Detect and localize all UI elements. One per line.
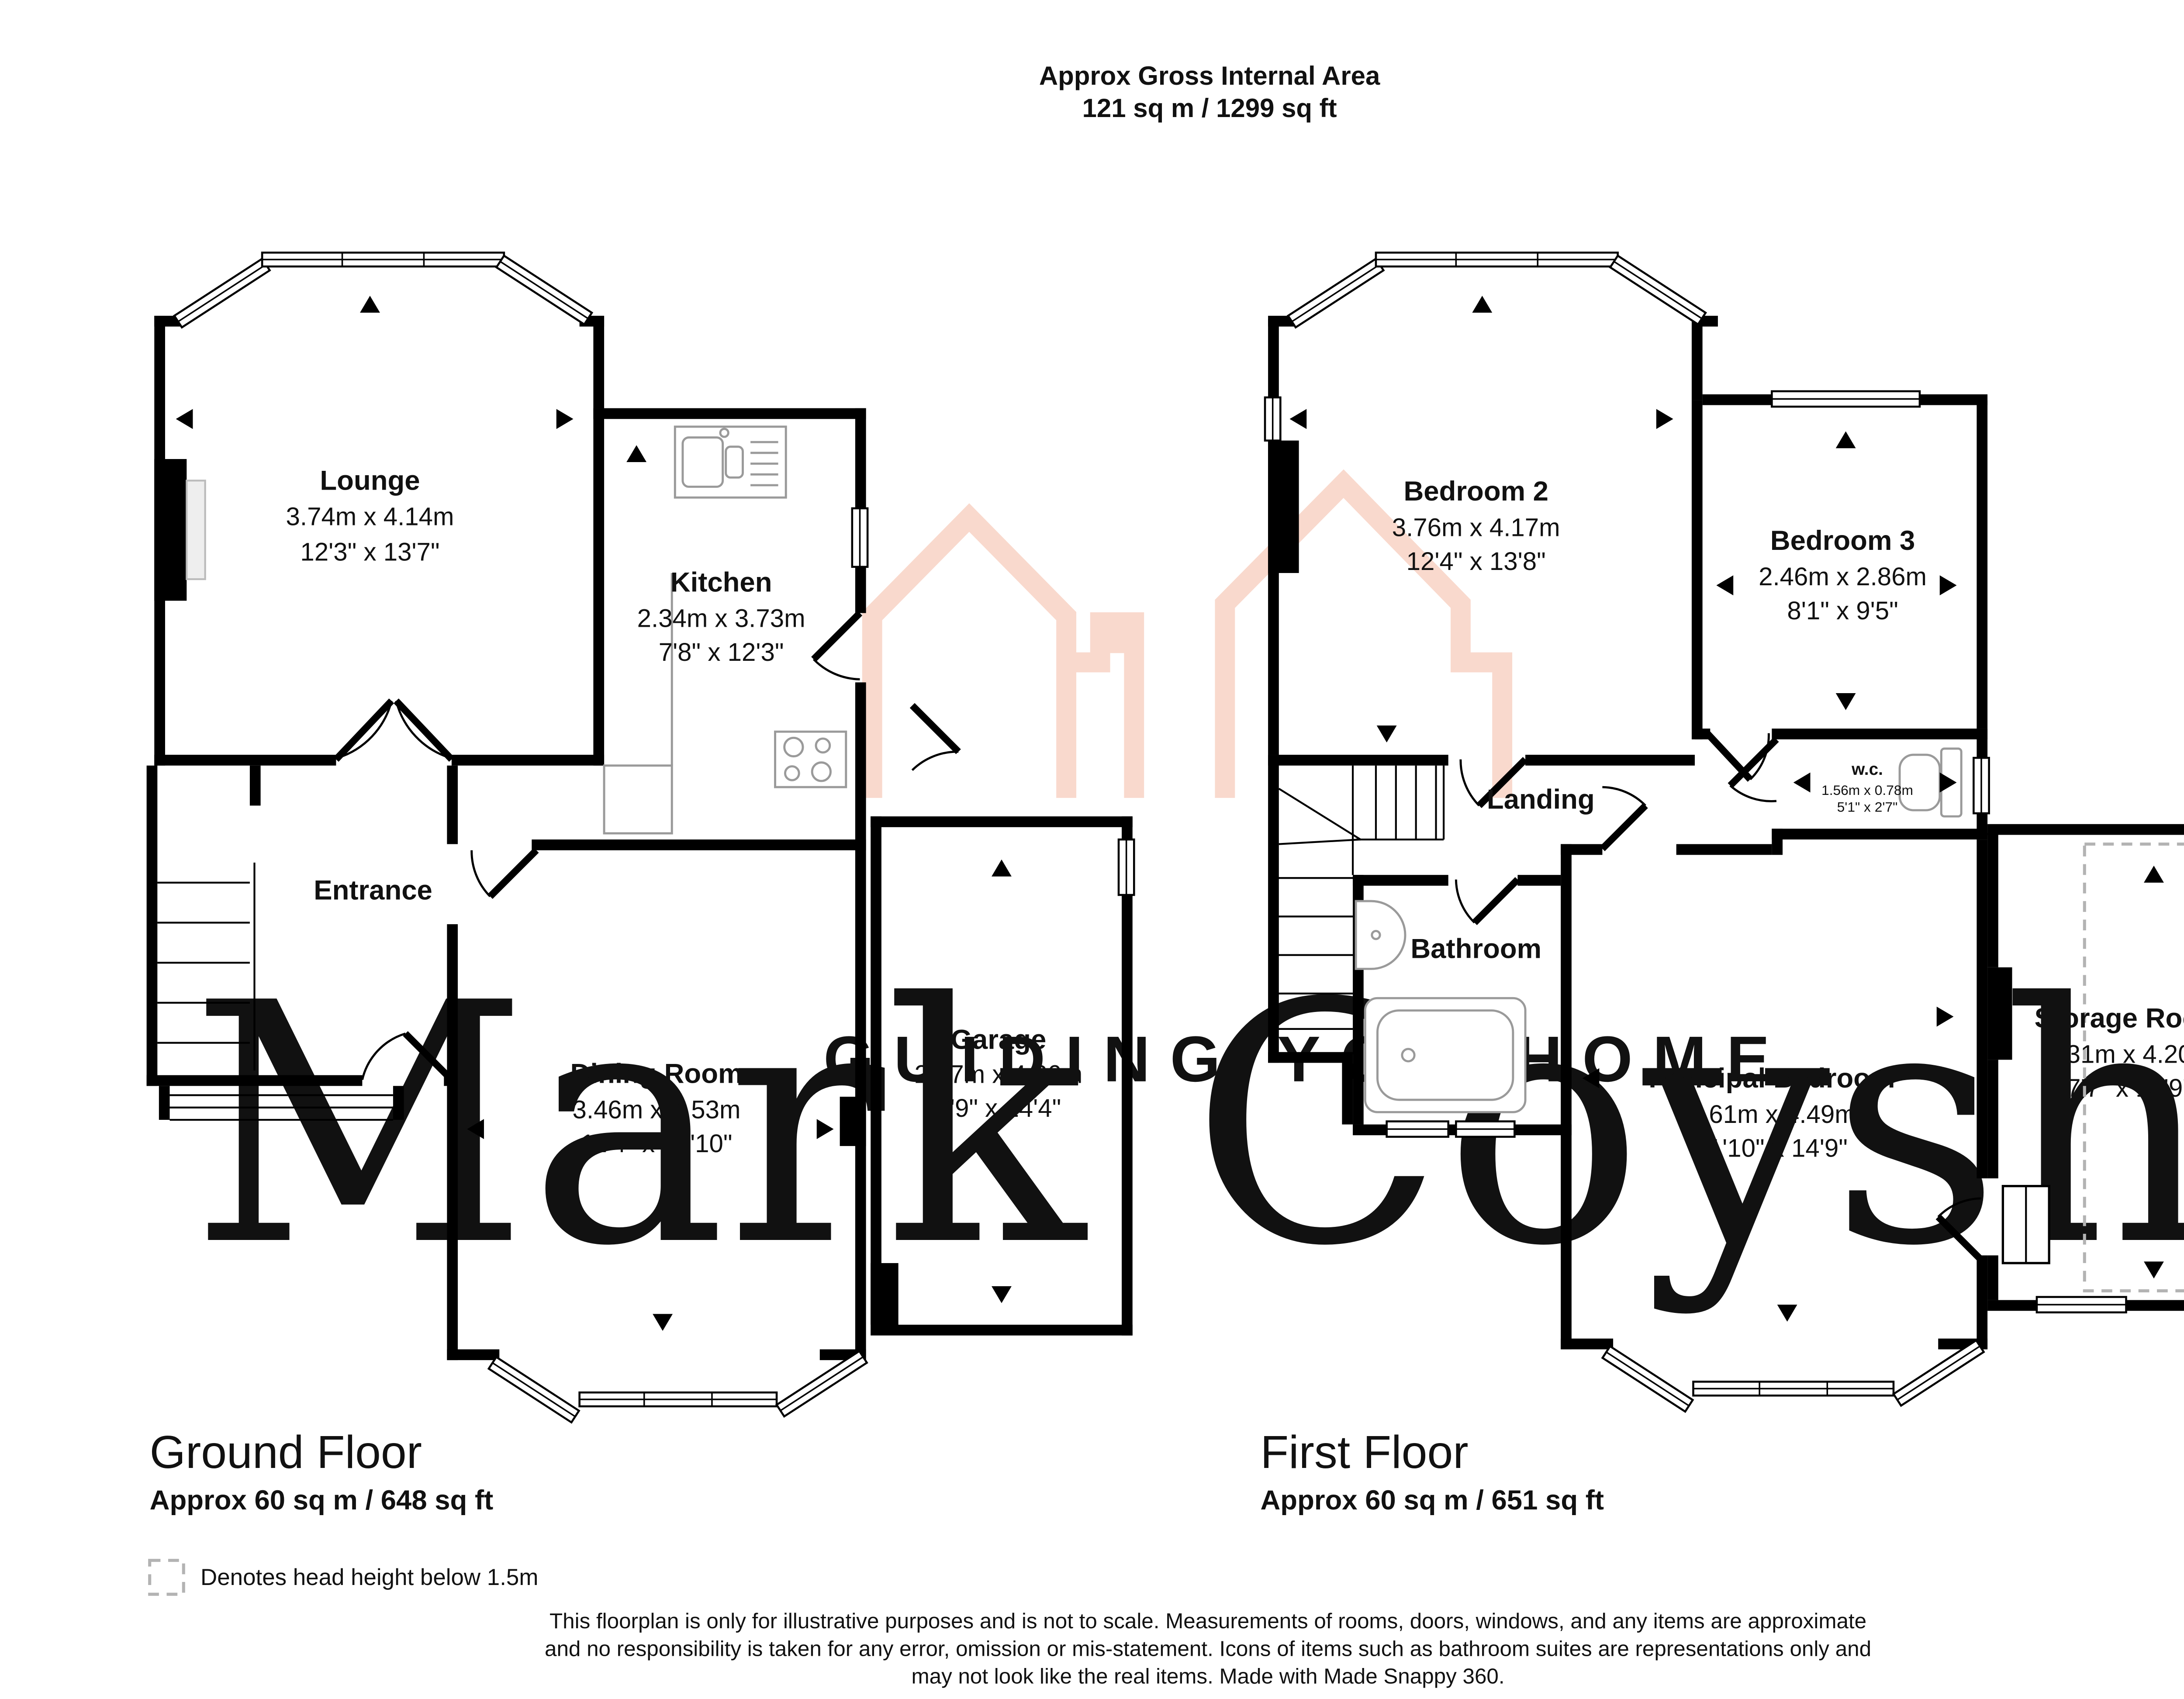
garage-metric: 2.37m x 4.36m (914, 1060, 1082, 1088)
head-height-legend-text: Denotes head height below 1.5m (200, 1564, 538, 1590)
ground-floor-area: Approx 60 sq m / 648 sq ft (150, 1485, 494, 1516)
wc-imperial: 5'1" x 2'7" (1837, 799, 1898, 815)
first-floor-area: Approx 60 sq m / 651 sq ft (1260, 1485, 1604, 1516)
brand-logo-dot-icon (1103, 622, 1131, 653)
bedroom2-metric: 3.76m x 4.17m (1392, 513, 1560, 542)
kitchen-unit-icon (604, 766, 672, 833)
bathtub-icon (1365, 998, 1525, 1112)
gross-area-title: Approx Gross Internal Area (1039, 61, 1380, 90)
dining-name: Dining Room (570, 1058, 743, 1089)
lounge-imperial: 12'3" x 13'7" (300, 538, 439, 566)
disclaimer: This floorplan is only for illustrative … (545, 1609, 1871, 1689)
fireplace-icon (187, 480, 205, 579)
bathroom-name: Bathroom (1410, 934, 1541, 964)
storage-imperial: 7'7" x 13'9" (2067, 1074, 2184, 1102)
legend: Denotes head height below 1.5m (150, 1561, 539, 1595)
disclaimer-line-1: This floorplan is only for illustrative … (549, 1609, 1866, 1633)
landing-name: Landing (1487, 784, 1595, 815)
kitchen-hob-icon (775, 732, 846, 787)
ground-floor-label: Ground Floor (150, 1426, 422, 1478)
principal-imperial: 11'10" x 14'9" (1696, 1134, 1848, 1163)
disclaimer-line-3: may not look like the real items. Made w… (912, 1664, 1505, 1689)
lounge-metric: 3.74m x 4.14m (286, 503, 454, 531)
storage-cupboard-icon (2003, 1186, 2049, 1263)
disclaimer-line-2: and no responsibility is taken for any e… (545, 1637, 1871, 1661)
entrance-name: Entrance (314, 875, 432, 906)
principal-name: Principal Bedroom (1648, 1063, 1895, 1094)
first-floor-label: First Floor (1260, 1426, 1468, 1478)
floorplan-canvas: Mark Coysh GUIDING YOU HOME Approx Gross… (0, 0, 2184, 1699)
bedroom3-imperial: 8'1" x 9'5" (1787, 597, 1898, 625)
garage-imperial: 7'9" x 14'4" (936, 1094, 1061, 1122)
wc-metric: 1.56m x 0.78m (1821, 782, 1913, 798)
watermark-company-name: Mark Coysh (190, 932, 2184, 1318)
header-title: Approx Gross Internal Area 121 sq m / 12… (1039, 61, 1380, 123)
dining-imperial: 11'4" x 14'10" (581, 1129, 732, 1158)
kitchen-imperial: 7'8" x 12'3" (659, 638, 784, 666)
kitchen-sink-icon (675, 427, 786, 497)
dining-metric: 3.46m x 4.53m (573, 1095, 741, 1124)
bedroom2-name: Bedroom 2 (1403, 476, 1548, 507)
kitchen-name: Kitchen (670, 567, 772, 597)
bedroom2-imperial: 12'4" x 13'8" (1406, 547, 1546, 576)
storage-metric: 2.31m x 4.20m (2045, 1040, 2184, 1068)
head-height-legend-icon (150, 1561, 184, 1595)
lounge-name: Lounge (320, 466, 420, 496)
gross-area-value: 121 sq m / 1299 sq ft (1082, 93, 1337, 123)
kitchen-metric: 2.34m x 3.73m (637, 604, 805, 632)
storage-name: Storage Room (2035, 1003, 2184, 1033)
footer: Ground Floor Approx 60 sq m / 648 sq ft … (150, 1426, 1871, 1689)
bedroom3-name: Bedroom 3 (1770, 525, 1915, 556)
bedroom3-metric: 2.46m x 2.86m (1759, 563, 1927, 591)
principal-metric: 3.61m x 4.49m (1688, 1100, 1856, 1129)
floorplan-page: Mark Coysh GUIDING YOU HOME Approx Gross… (0, 0, 2184, 1699)
wc-name: w.c. (1851, 760, 1883, 779)
garage-name: Garage (951, 1025, 1047, 1055)
